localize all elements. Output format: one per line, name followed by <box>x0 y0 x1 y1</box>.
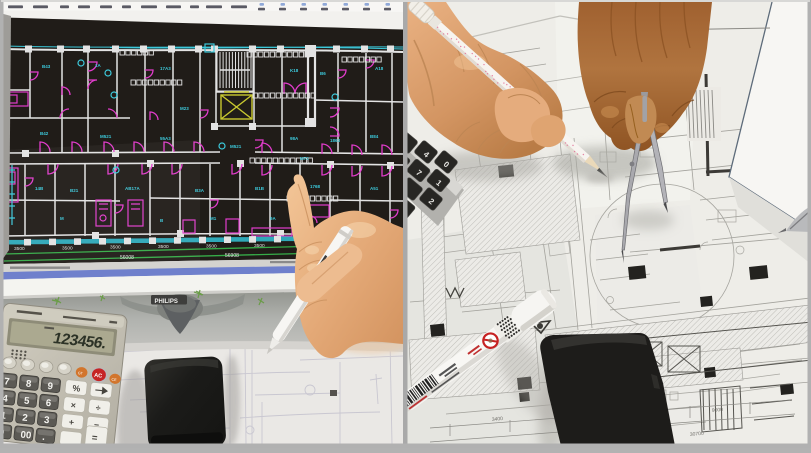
svg-text:17A3: 17A3 <box>160 66 171 71</box>
svg-text:%: % <box>72 383 81 394</box>
svg-text:3400: 3400 <box>492 416 504 423</box>
svg-text:M23: M23 <box>180 106 189 111</box>
svg-text:B1B: B1B <box>255 186 265 191</box>
svg-text:B84: B84 <box>370 134 379 139</box>
svg-text:1768: 1768 <box>310 184 321 189</box>
svg-text:CE: CE <box>111 378 117 383</box>
svg-text:A18: A18 <box>375 66 384 71</box>
svg-text:B6: B6 <box>320 71 326 76</box>
svg-text:M1: M1 <box>210 216 217 221</box>
svg-text:PHILIPS: PHILIPS <box>155 299 178 305</box>
svg-text:A51: A51 <box>370 186 379 191</box>
svg-text:K18: K18 <box>290 68 299 73</box>
svg-text:AC: AC <box>94 373 103 380</box>
svg-text:9A: 9A <box>270 216 277 221</box>
svg-text:M521: M521 <box>230 144 242 149</box>
svg-text:B42: B42 <box>40 131 49 136</box>
svg-text:M72: M72 <box>300 156 309 161</box>
svg-text:30700: 30700 <box>690 431 705 438</box>
svg-text:98A: 98A <box>290 136 299 141</box>
svg-text:×: × <box>70 400 76 410</box>
svg-text:B43: B43 <box>42 64 51 69</box>
svg-text:2: 2 <box>22 413 29 425</box>
svg-text:00: 00 <box>20 430 32 442</box>
svg-text:+: + <box>68 417 74 427</box>
svg-text:56908: 56908 <box>225 253 239 259</box>
svg-text:M521: M521 <box>100 134 112 139</box>
svg-text:7: 7 <box>4 376 11 388</box>
svg-text:1A: 1A <box>95 63 102 68</box>
svg-text:55A3: 55A3 <box>160 136 171 141</box>
svg-text:1863: 1863 <box>330 138 341 143</box>
svg-text:9000: 9000 <box>712 407 724 414</box>
